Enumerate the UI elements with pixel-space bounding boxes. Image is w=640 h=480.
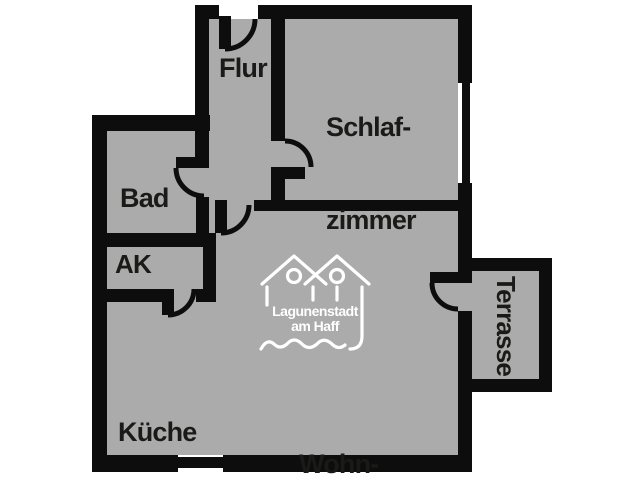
entrance-door-arc [225, 19, 255, 49]
room-label-terrasse: Terrasse [493, 256, 519, 396]
room-label-schlafzimmer: Schlaf- zimmer [326, 52, 416, 296]
logo-text-line2: am Haff [250, 318, 380, 334]
wohnzimmer-door-arc [221, 205, 249, 233]
room-label-ak: AK [115, 250, 151, 279]
bad-door-arc [176, 168, 204, 196]
room-label-bad: Bad [120, 184, 169, 214]
logo-text-line1: Lagunenstadt [250, 303, 380, 319]
room-label-schlafzimmer-line1: Schlaf- [326, 111, 416, 144]
schlafzimmer-door-arc [285, 141, 311, 167]
logo-wave-icon [261, 340, 345, 349]
room-label-schlafzimmer-line2: zimmer [326, 204, 416, 237]
room-label-wohnzimmer: Wohn- zimmer [299, 390, 389, 480]
room-label-kueche: Küche [118, 418, 197, 448]
floor-plan: Flur Schlaf- zimmer Bad AK Küche Wohn- z… [0, 0, 640, 480]
logo-left-porthole [288, 270, 301, 283]
terrace-door-arc [432, 283, 458, 309]
room-label-flur: Flur [219, 54, 267, 84]
ak-door-arc [168, 289, 194, 315]
room-label-wohnzimmer-line1: Wohn- [299, 449, 389, 479]
